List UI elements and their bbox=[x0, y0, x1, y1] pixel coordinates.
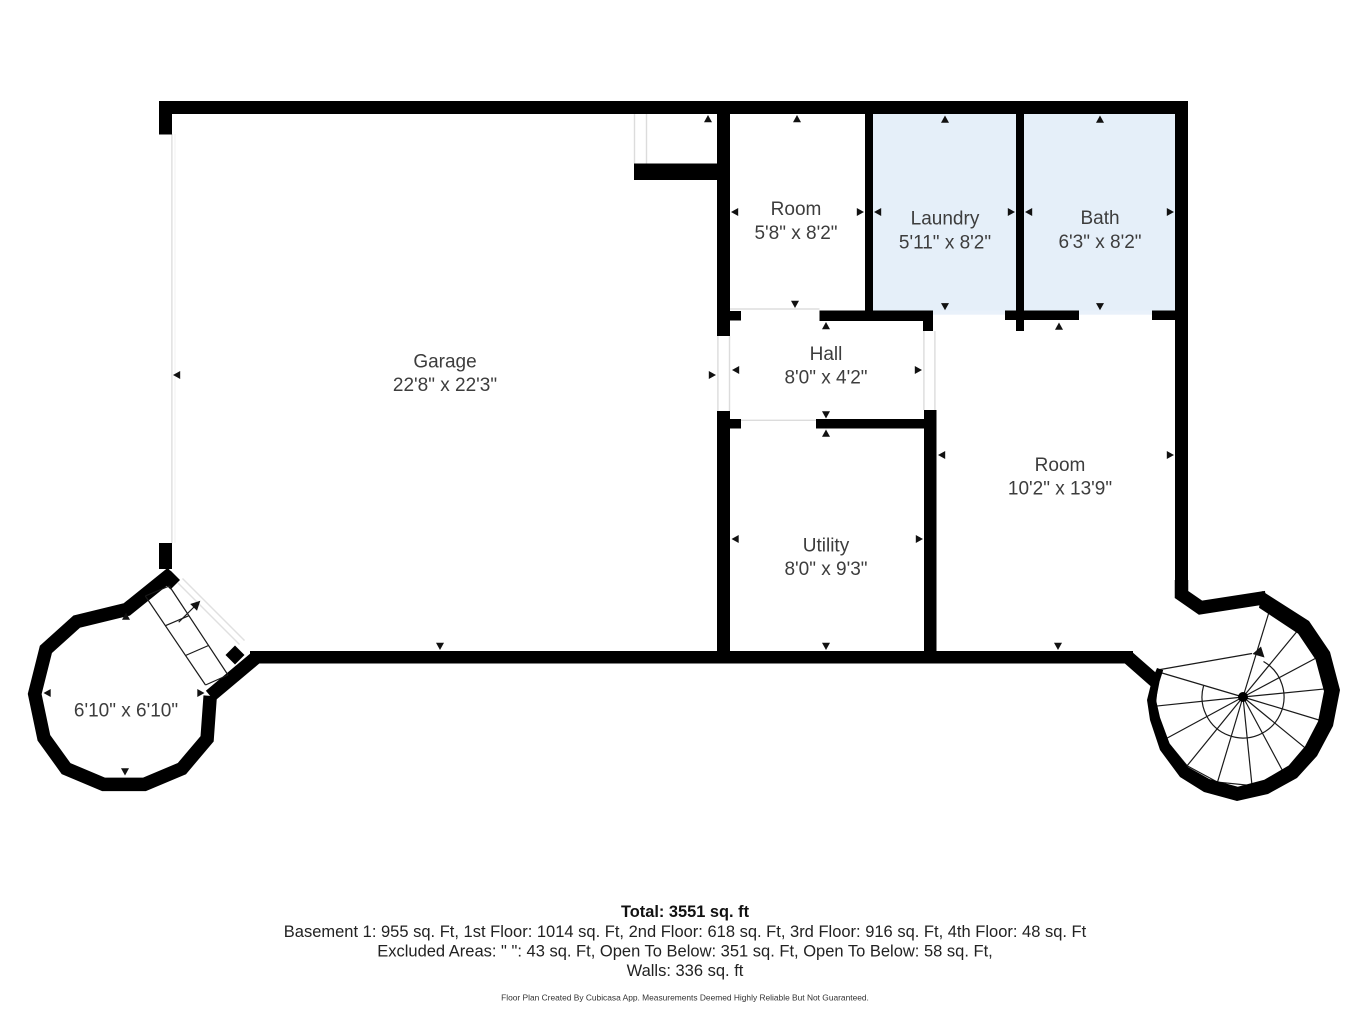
svg-text:Room: Room bbox=[1035, 455, 1086, 476]
svg-text:Walls: 336 sq. ft: Walls: 336 sq. ft bbox=[627, 962, 744, 980]
svg-text:Total: 3551 sq. ft: Total: 3551 sq. ft bbox=[621, 903, 750, 921]
svg-text:Bath: Bath bbox=[1080, 208, 1119, 229]
svg-text:Basement 1: 955 sq. Ft, 1st Fl: Basement 1: 955 sq. Ft, 1st Floor: 1014 … bbox=[284, 923, 1087, 941]
svg-text:6'3" x 8'2": 6'3" x 8'2" bbox=[1058, 232, 1141, 253]
svg-text:5'8" x 8'2": 5'8" x 8'2" bbox=[754, 223, 837, 244]
svg-text:Laundry: Laundry bbox=[911, 209, 980, 230]
svg-text:8'0" x 4'2": 8'0" x 4'2" bbox=[784, 368, 867, 389]
svg-text:5'11" x 8'2": 5'11" x 8'2" bbox=[899, 233, 991, 254]
svg-text:8'0" x 9'3": 8'0" x 9'3" bbox=[784, 559, 867, 580]
svg-text:Utility: Utility bbox=[803, 536, 850, 557]
svg-text:6'10" x 6'10": 6'10" x 6'10" bbox=[74, 701, 178, 722]
svg-text:Floor Plan Created By Cubicasa: Floor Plan Created By Cubicasa App. Meas… bbox=[501, 993, 869, 1003]
svg-text:Hall: Hall bbox=[810, 344, 843, 365]
svg-text:Excluded Areas: " ": 43 sq. Ft: Excluded Areas: " ": 43 sq. Ft, Open To … bbox=[377, 943, 993, 961]
svg-text:Garage: Garage bbox=[413, 352, 476, 373]
svg-text:10'2" x 13'9": 10'2" x 13'9" bbox=[1008, 479, 1112, 500]
svg-text:22'8" x 22'3": 22'8" x 22'3" bbox=[393, 375, 497, 396]
svg-text:Room: Room bbox=[771, 199, 822, 220]
